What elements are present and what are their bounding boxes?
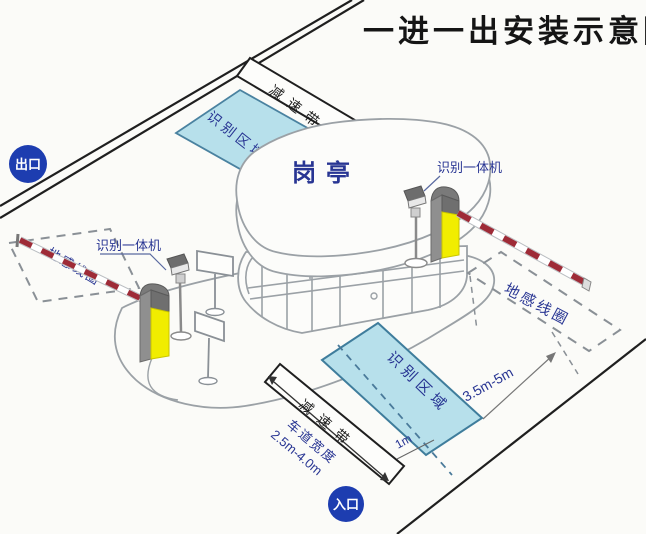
sign-board-1 (197, 251, 233, 316)
ground-loop-label-right: 地感线圈 (501, 281, 573, 330)
entrance-badge: 入口 (328, 486, 364, 522)
exit-badge-text: 出口 (15, 157, 41, 172)
camera-label-right-text: 识别一体机 (437, 160, 502, 175)
diagram-title: 一进一出安装示意图 (363, 14, 646, 49)
exit-badge: 出口 (9, 145, 47, 183)
camera-label-left-text: 识别一体机 (96, 238, 161, 253)
diagram-canvas: 减速带 识别区域 (0, 0, 646, 534)
sign-board-2 (195, 312, 224, 385)
cable-left (148, 358, 178, 400)
installation-diagram: 减速带 识别区域 (0, 0, 646, 534)
booth-label: 岗亭 (292, 159, 360, 187)
recognition-zone-bottom: 识别区域 (322, 323, 482, 475)
barrier-gate-left (140, 284, 169, 362)
camera-label-left: 识别一体机 (96, 238, 166, 270)
entrance-badge-text: 入口 (333, 497, 359, 512)
dimension-3-5m-text: 3.5m-5m (460, 364, 516, 405)
barrier-gate-right (431, 187, 459, 262)
dimension-3-5m: 3.5m-5m (460, 352, 556, 419)
camera-pole-left (167, 254, 191, 340)
